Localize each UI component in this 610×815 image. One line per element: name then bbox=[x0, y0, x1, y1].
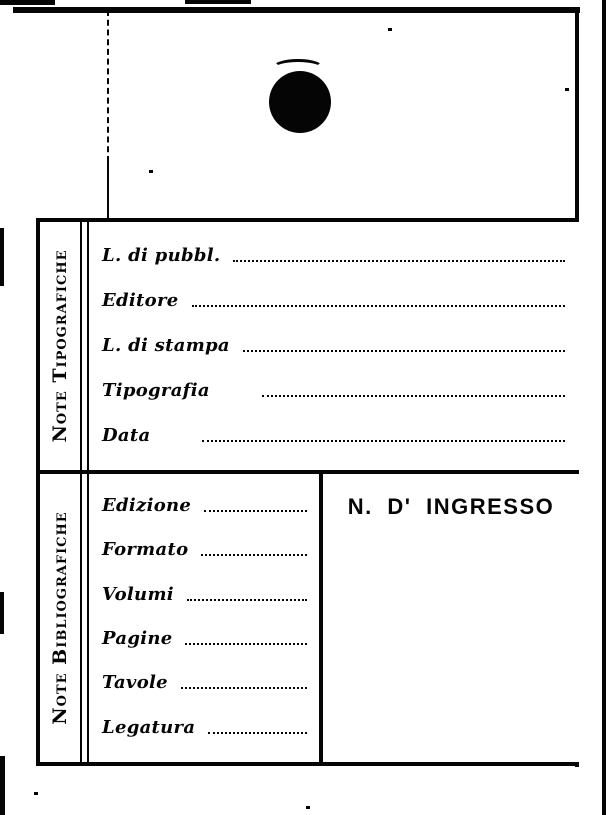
noise-dot bbox=[388, 28, 392, 31]
ingresso-box: N. D' INGRESSO bbox=[323, 474, 579, 762]
fill-in-line bbox=[185, 642, 307, 645]
scan-left-artifact bbox=[0, 756, 5, 815]
fill-in-line bbox=[243, 349, 565, 352]
field-row-data: Data bbox=[102, 427, 565, 445]
vertical-title-strip: Note Tipografiche bbox=[40, 222, 80, 470]
field-row-editore: Editore bbox=[102, 292, 565, 310]
field-row-volumi: Volumi bbox=[102, 586, 307, 604]
scan-left-artifact bbox=[0, 228, 4, 286]
fill-in-line bbox=[208, 731, 307, 734]
scan-corner-mark bbox=[0, 0, 55, 5]
vertical-title-strip: Note Bibliografiche bbox=[40, 474, 80, 762]
field-label: Tipografia bbox=[102, 382, 210, 400]
field-label: Editore bbox=[102, 292, 179, 310]
field-row-l-di-pubbl: L. di pubbl. bbox=[102, 247, 565, 265]
field-label: Tavole bbox=[102, 674, 168, 692]
field-row-legatura: Legatura bbox=[102, 719, 307, 737]
field-row-tavole: Tavole bbox=[102, 674, 307, 692]
field-row-tipografia: Tipografia bbox=[102, 382, 565, 400]
section-title-tipografiche: Note Tipografiche bbox=[49, 249, 71, 442]
field-row-pagine: Pagine bbox=[102, 630, 307, 648]
fill-in-line bbox=[201, 553, 307, 556]
scan-right-edge bbox=[602, 0, 606, 815]
noise-dot bbox=[149, 170, 153, 173]
fill-in-line bbox=[202, 439, 565, 442]
field-label: Formato bbox=[102, 541, 188, 559]
section-title-bibliografiche: Note Bibliografiche bbox=[49, 511, 71, 724]
field-label: L. di stampa bbox=[102, 337, 230, 355]
fill-in-line bbox=[233, 259, 565, 262]
field-label: Data bbox=[102, 427, 150, 445]
fill-in-line bbox=[262, 394, 565, 397]
double-rule bbox=[80, 474, 89, 762]
field-row-edizione: Edizione bbox=[102, 497, 307, 515]
field-label: L. di pubbl. bbox=[102, 247, 220, 265]
field-label: Edizione bbox=[102, 497, 191, 515]
noise-dot bbox=[306, 806, 310, 809]
scan-top-rule bbox=[13, 7, 580, 13]
field-label: Pagine bbox=[102, 630, 172, 648]
field-label: Legatura bbox=[102, 719, 195, 737]
fill-in-line bbox=[204, 509, 307, 512]
fill-in-line bbox=[181, 686, 307, 689]
punch-hole bbox=[269, 71, 331, 133]
fill-in-line bbox=[187, 598, 307, 601]
double-rule bbox=[80, 222, 89, 470]
field-row-l-di-stampa: L. di stampa bbox=[102, 337, 565, 355]
ingresso-heading: N. D' INGRESSO bbox=[323, 474, 579, 520]
section-note-bibliografiche: Note Bibliografiche Edizione Formato Vol… bbox=[40, 474, 579, 762]
tipografiche-fields: L. di pubbl. Editore L. di stampa Tipogr… bbox=[89, 222, 579, 470]
catalog-card-table: Note Tipografiche L. di pubbl. Editore L… bbox=[36, 218, 579, 766]
bibliografiche-fields: Edizione Formato Volumi Pagine Tavole Le… bbox=[89, 474, 319, 762]
field-label: Volumi bbox=[102, 586, 174, 604]
fill-in-line bbox=[192, 304, 566, 307]
noise-dot bbox=[565, 88, 569, 91]
section-note-tipografiche: Note Tipografiche L. di pubbl. Editore L… bbox=[40, 222, 579, 470]
field-row-formato: Formato bbox=[102, 541, 307, 559]
fold-line-dashed bbox=[107, 10, 109, 162]
scan-left-artifact bbox=[0, 592, 4, 634]
noise-dot bbox=[34, 792, 38, 795]
scan-edge-mark bbox=[185, 0, 251, 4]
